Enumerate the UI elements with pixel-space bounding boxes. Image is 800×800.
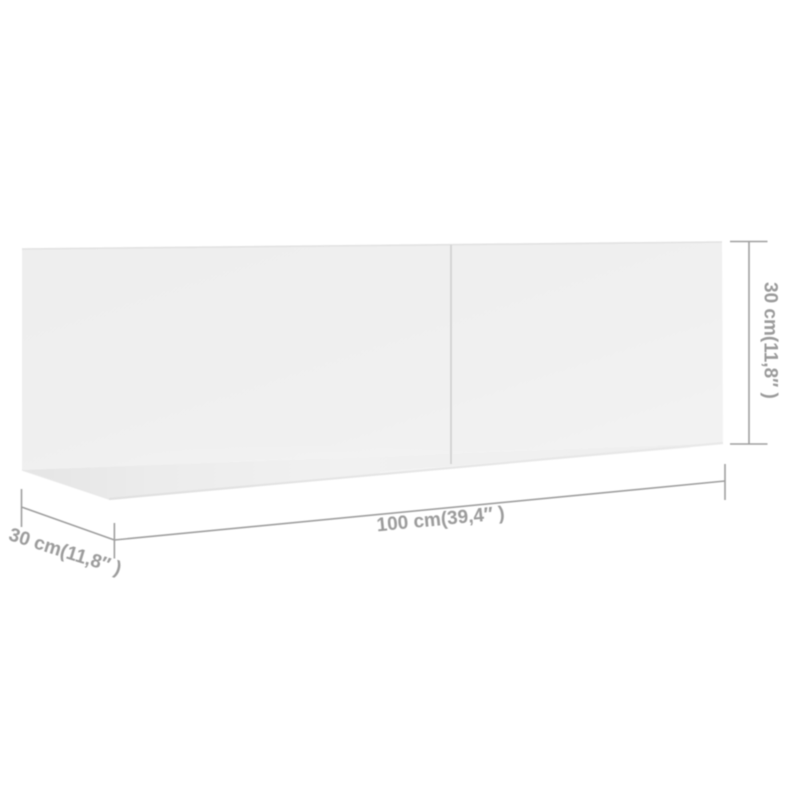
svg-text:30 cm(11,8″ ): 30 cm(11,8″ ) xyxy=(760,282,781,399)
